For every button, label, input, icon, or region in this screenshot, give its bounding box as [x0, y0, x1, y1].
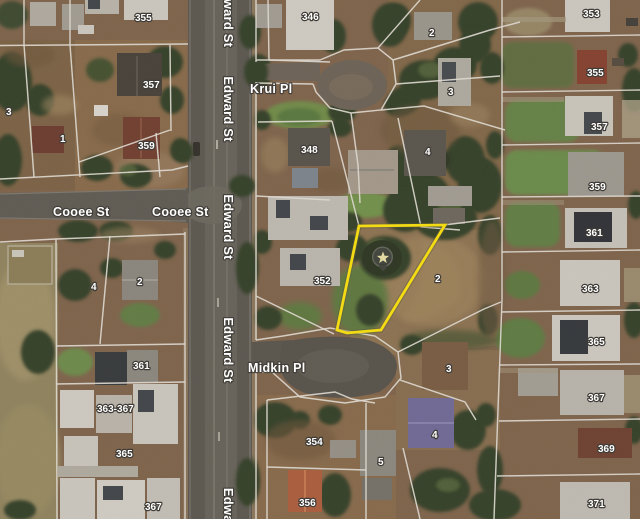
svg-text:365: 365 — [588, 337, 605, 348]
svg-text:359: 359 — [589, 182, 606, 193]
svg-text:ward St: ward St — [221, 0, 236, 48]
svg-text:363-367: 363-367 — [97, 404, 134, 415]
svg-text:355: 355 — [587, 68, 604, 79]
svg-text:371: 371 — [588, 499, 605, 510]
svg-text:2: 2 — [137, 277, 143, 288]
svg-text:359: 359 — [138, 141, 155, 152]
svg-text:355: 355 — [135, 13, 152, 24]
svg-text:3: 3 — [448, 87, 454, 98]
svg-text:354: 354 — [306, 437, 323, 448]
svg-text:3: 3 — [6, 107, 12, 118]
svg-text:361: 361 — [586, 228, 603, 239]
svg-text:Cooee St: Cooee St — [152, 205, 209, 219]
svg-text:Edward St: Edward St — [221, 194, 236, 260]
svg-text:Cooee St: Cooee St — [53, 205, 110, 219]
svg-text:369: 369 — [598, 444, 615, 455]
svg-text:367: 367 — [588, 393, 605, 404]
svg-text:5: 5 — [378, 457, 384, 468]
svg-text:3: 3 — [446, 364, 452, 375]
svg-text:2: 2 — [435, 274, 441, 285]
svg-text:4: 4 — [425, 147, 431, 158]
svg-text:348: 348 — [301, 145, 318, 156]
svg-text:361: 361 — [133, 361, 150, 372]
svg-text:1: 1 — [60, 134, 66, 145]
svg-text:Edward St: Edward St — [221, 76, 236, 142]
svg-text:Edward St: Edward St — [221, 317, 236, 383]
svg-text:346: 346 — [302, 12, 319, 23]
svg-text:Edward: Edward — [221, 488, 236, 519]
svg-text:Krui Pl: Krui Pl — [250, 82, 292, 96]
svg-text:4: 4 — [432, 430, 438, 441]
svg-text:Midkin Pl: Midkin Pl — [248, 361, 306, 375]
svg-text:356: 356 — [299, 498, 316, 509]
svg-text:2: 2 — [429, 28, 435, 39]
svg-text:365: 365 — [116, 449, 133, 460]
svg-text:4: 4 — [91, 282, 97, 293]
svg-text:352: 352 — [314, 276, 331, 287]
svg-text:363: 363 — [582, 284, 599, 295]
svg-text:357: 357 — [591, 122, 608, 133]
svg-text:357: 357 — [143, 80, 160, 91]
svg-text:353: 353 — [583, 9, 600, 20]
svg-text:367: 367 — [145, 502, 162, 513]
